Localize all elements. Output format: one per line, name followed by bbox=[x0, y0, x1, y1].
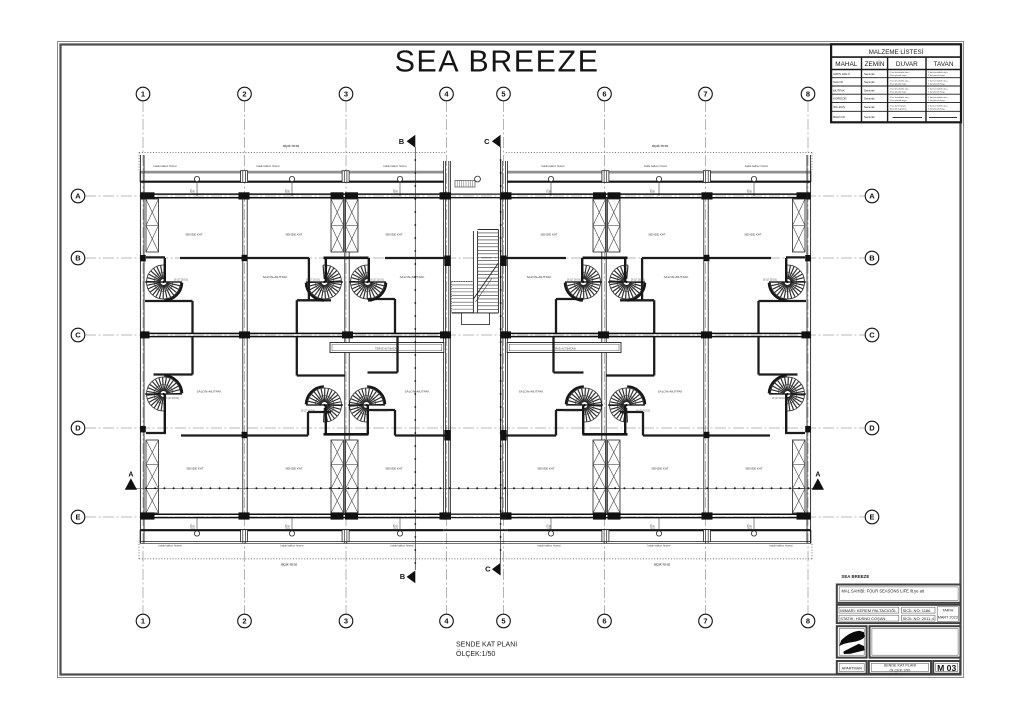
svg-text:SENDE KAT: SENDE KAT bbox=[651, 467, 668, 471]
svg-text:SENDE KAT: SENDE KAT bbox=[745, 467, 762, 471]
svg-text:C: C bbox=[869, 331, 875, 340]
svg-text:APARTMAN: APARTMAN bbox=[842, 666, 862, 670]
svg-text:SALON+MUTFAK: SALON+MUTFAK bbox=[527, 275, 553, 279]
svg-text:200: 200 bbox=[396, 524, 399, 529]
svg-text:SENDE KAT: SENDE KAT bbox=[537, 467, 554, 471]
svg-text:balde balkon hüzesi: balde balkon hüzesi bbox=[770, 543, 793, 547]
svg-text:SALON: SALON bbox=[833, 80, 843, 84]
svg-text:16 (17.18.19.): 16 (17.18.19.) bbox=[370, 280, 385, 282]
svg-text:3: 3 bbox=[344, 90, 348, 99]
svg-text:balde balkon hüzesi: balde balkon hüzesi bbox=[281, 543, 304, 547]
svg-text:16 (17.18.19.): 16 (17.18.19.) bbox=[165, 398, 180, 400]
svg-text:A: A bbox=[128, 472, 133, 479]
svg-text:SENDE KAT: SENDE KAT bbox=[540, 233, 557, 237]
svg-text:SENDE KAT: SENDE KAT bbox=[285, 467, 302, 471]
svg-text:Seramik: Seramik bbox=[864, 80, 875, 84]
svg-text:WC-DUŞ: WC-DUŞ bbox=[833, 105, 845, 109]
svg-text:A: A bbox=[75, 192, 81, 201]
svg-text:Seramik: Seramik bbox=[864, 97, 875, 101]
svg-text:Seramik: Seramik bbox=[864, 105, 875, 109]
svg-text:B: B bbox=[399, 137, 405, 146]
svg-text:6: 6 bbox=[602, 617, 606, 626]
svg-text:balde balkon hüzesi: balde balkon hüzesi bbox=[538, 543, 561, 547]
svg-text:D: D bbox=[869, 424, 875, 433]
svg-text:7: 7 bbox=[703, 617, 707, 626]
svg-text:MAHAL: MAHAL bbox=[835, 61, 857, 68]
svg-text:200: 200 bbox=[193, 189, 196, 194]
svg-text:balde balkon hüzesi: balde balkon hüzesi bbox=[745, 164, 768, 168]
svg-text:SENDE KAT PLANI: SENDE KAT PLANI bbox=[884, 663, 916, 667]
svg-text:alçak teras: alçak teras bbox=[652, 144, 669, 148]
svg-text:200: 200 bbox=[288, 189, 291, 194]
svg-text:16 (17.18.19.): 16 (17.18.19.) bbox=[564, 411, 579, 413]
svg-text:SALON+MUTFAK: SALON+MUTFAK bbox=[658, 390, 684, 394]
svg-text:2 kat kartonpiyer,: 2 kat kartonpiyer, bbox=[890, 104, 907, 107]
svg-text:KORİDOR: KORİDOR bbox=[833, 96, 847, 101]
svg-text:C: C bbox=[75, 331, 81, 340]
svg-text:3 kat plastik boya: 3 kat plastik boya bbox=[928, 82, 946, 85]
svg-text:2 kat kıvrılabilir alçı+: 2 kat kıvrılabilir alçı+ bbox=[928, 96, 949, 99]
svg-text:200: 200 bbox=[549, 524, 552, 529]
svg-text:balde balkon hüzesi: balde balkon hüzesi bbox=[159, 543, 182, 547]
svg-text:8: 8 bbox=[806, 617, 810, 626]
svg-text:3: 3 bbox=[344, 617, 348, 626]
svg-text:3 kat plastik boya: 3 kat plastik boya bbox=[890, 91, 908, 94]
svg-text:SENDE KAT: SENDE KAT bbox=[744, 233, 761, 237]
svg-text:8: 8 bbox=[806, 90, 810, 99]
svg-text:BALKON: BALKON bbox=[833, 115, 845, 119]
svg-text:16 (17.18.19.): 16 (17.18.19.) bbox=[301, 411, 316, 413]
svg-text:SENDE KAT PLANI: SENDE KAT PLANI bbox=[456, 642, 517, 649]
svg-text:MALZEME LİSTESİ: MALZEME LİSTESİ bbox=[869, 49, 924, 56]
svg-text:2 kat kıvrılabilir alçı+: 2 kat kıvrılabilir alçı+ bbox=[890, 88, 911, 91]
svg-text:16 (17.18.19.): 16 (17.18.19.) bbox=[772, 398, 787, 400]
svg-text:2 kat kıvrılabilir alçı+: 2 kat kıvrılabilir alçı+ bbox=[928, 71, 949, 74]
svg-text:16 (17.18.19.): 16 (17.18.19.) bbox=[631, 280, 646, 282]
svg-text:E: E bbox=[75, 513, 80, 522]
svg-text:SALON+MUTFAK: SALON+MUTFAK bbox=[197, 390, 223, 394]
svg-text:3 kat plastik boya: 3 kat plastik boya bbox=[890, 82, 908, 85]
svg-text:MAL SAHİBİ: FOUR SEASONS LIF: MAL SAHİBİ: FOUR SEASONS LIFE ilt.ye ait bbox=[842, 589, 925, 594]
svg-text:balde balkon hüzesi: balde balkon hüzesi bbox=[257, 164, 280, 168]
svg-text:MUTFAK: MUTFAK bbox=[833, 88, 845, 92]
svg-text:ÖLÇEK:1/50: ÖLÇEK:1/50 bbox=[890, 668, 911, 672]
svg-text:200: 200 bbox=[750, 189, 753, 194]
svg-text:SENDE KAT: SENDE KAT bbox=[385, 233, 402, 237]
svg-text:5: 5 bbox=[501, 617, 505, 626]
svg-text:1: 1 bbox=[141, 617, 145, 626]
svg-text:7: 7 bbox=[703, 90, 707, 99]
svg-text:GİRİŞ HOLÜ: GİRİŞ HOLÜ bbox=[833, 71, 850, 76]
svg-text:balde balkon hüzesi: balde balkon hüzesi bbox=[154, 164, 177, 168]
svg-text:SİCİL NO: 1186: SİCİL NO: 1186 bbox=[903, 608, 932, 613]
svg-text:SALON+MUTFAK: SALON+MUTFAK bbox=[519, 390, 545, 394]
svg-text:200: 200 bbox=[653, 189, 656, 194]
svg-text:B: B bbox=[400, 572, 406, 581]
svg-text:200: 200 bbox=[193, 524, 196, 529]
svg-text:balde balkon hüzesi: balde balkon hüzesi bbox=[648, 543, 671, 547]
svg-text:5: 5 bbox=[501, 90, 505, 99]
svg-text:2 kat kıvrılabilir alçı+: 2 kat kıvrılabilir alçı+ bbox=[928, 88, 949, 91]
svg-text:1: 1 bbox=[141, 90, 145, 99]
svg-text:C: C bbox=[484, 137, 490, 146]
svg-text:3 kat plastik boya: 3 kat plastik boya bbox=[928, 91, 946, 94]
svg-text:16 (17.18.19.): 16 (17.18.19.) bbox=[763, 280, 778, 282]
svg-text:SALON+MUTFAK: SALON+MUTFAK bbox=[405, 390, 431, 394]
svg-text:2 kat kıvrılabilir alçı+: 2 kat kıvrılabilir alçı+ bbox=[890, 96, 911, 99]
svg-text:TERAS ALT BACASI: TERAS ALT BACASI bbox=[375, 347, 399, 351]
svg-text:SENDE KAT: SENDE KAT bbox=[285, 233, 302, 237]
svg-text:A: A bbox=[815, 472, 820, 479]
svg-text:TAVAN: TAVAN bbox=[934, 61, 954, 68]
svg-text:Seramik: Seramik bbox=[864, 88, 875, 92]
svg-text:B: B bbox=[869, 254, 875, 263]
svg-text:SENDE KAT: SENDE KAT bbox=[385, 467, 402, 471]
svg-text:SALON+MUTFAK: SALON+MUTFAK bbox=[263, 275, 289, 279]
svg-text:3 kat plastik boya: 3 kat plastik boya bbox=[928, 74, 946, 77]
svg-text:SALON+MUTFAK: SALON+MUTFAK bbox=[400, 275, 426, 279]
svg-text:TARİH: TARİH bbox=[942, 607, 953, 612]
svg-text:2: 2 bbox=[242, 90, 246, 99]
svg-text:16 (17.18.19.): 16 (17.18.19.) bbox=[373, 411, 388, 413]
svg-text:Seramik kaplama: Seramik kaplama bbox=[890, 107, 908, 110]
svg-text:balde balkon hüzesi: balde balkon hüzesi bbox=[391, 543, 414, 547]
svg-text:E: E bbox=[869, 513, 874, 522]
svg-text:2 kat kıvrılabilir alçı+: 2 kat kıvrılabilir alçı+ bbox=[890, 71, 911, 74]
svg-text:alçak teras: alçak teras bbox=[283, 144, 300, 148]
svg-text:200: 200 bbox=[396, 189, 399, 194]
svg-text:3 kat plastik boya: 3 kat plastik boya bbox=[890, 74, 908, 77]
svg-text:MART 2023: MART 2023 bbox=[938, 616, 958, 620]
svg-text:16 (17.18.19.): 16 (17.18.19.) bbox=[306, 280, 321, 282]
svg-text:SİCİL NO: 2011-4: SİCİL NO: 2011-4 bbox=[903, 616, 935, 621]
svg-text:SEA BREEZE: SEA BREEZE bbox=[395, 45, 600, 79]
svg-text:ZEMİN: ZEMİN bbox=[865, 59, 885, 68]
svg-text:alçak teras: alçak teras bbox=[654, 562, 671, 566]
svg-text:Seramik: Seramik bbox=[864, 72, 875, 76]
svg-text:3 kat plastik boya: 3 kat plastik boya bbox=[928, 107, 946, 110]
svg-text:200: 200 bbox=[750, 524, 753, 529]
svg-text:16 (17.18.19.): 16 (17.18.19.) bbox=[636, 411, 651, 413]
svg-text:16 (17.18.19.): 16 (17.18.19.) bbox=[174, 280, 189, 282]
svg-text:M 03: M 03 bbox=[937, 663, 956, 673]
svg-text:balde balkon hüzesi: balde balkon hüzesi bbox=[384, 164, 407, 168]
svg-text:MİMARİ: KEREM PALTACIOĞL: MİMARİ: KEREM PALTACIOĞL bbox=[840, 608, 897, 613]
svg-text:200: 200 bbox=[653, 524, 656, 529]
svg-text:Seramik: Seramik bbox=[864, 115, 875, 119]
svg-text:200: 200 bbox=[549, 189, 552, 194]
svg-text:2: 2 bbox=[242, 617, 246, 626]
svg-text:SENDE KAT: SENDE KAT bbox=[186, 467, 203, 471]
svg-text:A: A bbox=[869, 192, 875, 201]
svg-text:2 kat kıvrılabilir alçı+: 2 kat kıvrılabilir alçı+ bbox=[928, 79, 949, 82]
svg-text:200: 200 bbox=[288, 524, 291, 529]
svg-text:D: D bbox=[75, 424, 81, 433]
svg-text:balde balkon hüzesi: balde balkon hüzesi bbox=[644, 164, 667, 168]
svg-text:SENDE KAT: SENDE KAT bbox=[185, 233, 202, 237]
svg-text:2 kat kıvrılabilir alçı+: 2 kat kıvrılabilir alçı+ bbox=[928, 104, 949, 107]
svg-text:STATİK: HÜSNÜ COŞAN: STATİK: HÜSNÜ COŞAN bbox=[840, 616, 885, 621]
svg-text:SALON+MUTFAK: SALON+MUTFAK bbox=[664, 275, 690, 279]
svg-text:3 kat plastik boya: 3 kat plastik boya bbox=[928, 99, 946, 102]
svg-text:16 (17.18.19.): 16 (17.18.19.) bbox=[567, 280, 582, 282]
svg-text:3 kat plastik boya: 3 kat plastik boya bbox=[890, 99, 908, 102]
svg-text:alçak teras: alçak teras bbox=[281, 562, 298, 566]
svg-text:TERAS ALT BACASI: TERAS ALT BACASI bbox=[552, 347, 576, 351]
svg-text:SEA BREEZE: SEA BREEZE bbox=[841, 574, 869, 579]
svg-text:6: 6 bbox=[602, 90, 606, 99]
svg-text:DUVAR: DUVAR bbox=[896, 61, 918, 68]
svg-text:C: C bbox=[485, 564, 491, 573]
svg-text:SENDE KAT: SENDE KAT bbox=[648, 233, 665, 237]
svg-text:B: B bbox=[75, 254, 81, 263]
svg-text:ÖLÇEK:1/50: ÖLÇEK:1/50 bbox=[456, 650, 495, 658]
svg-text:balde balkon hüzesi: balde balkon hüzesi bbox=[542, 164, 565, 168]
svg-text:2 kat kıvrılabilir alçı+: 2 kat kıvrılabilir alçı+ bbox=[890, 79, 911, 82]
